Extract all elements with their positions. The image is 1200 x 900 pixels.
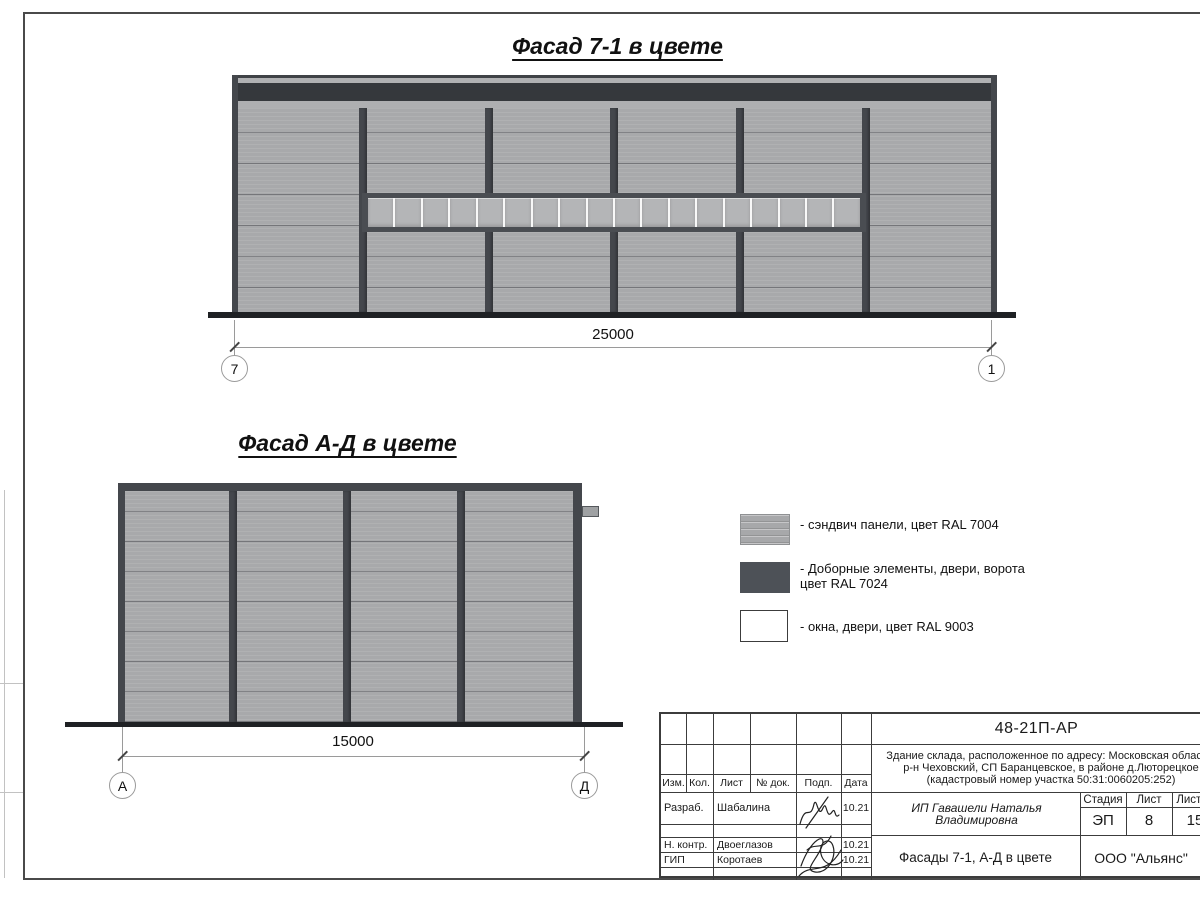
window-pane (807, 198, 832, 227)
window-pane (368, 198, 393, 227)
stage-label: Стадия (1080, 792, 1126, 807)
sheets-value: 15 (1172, 807, 1200, 835)
window-pane (670, 198, 695, 227)
frame-top-border (23, 12, 1200, 14)
legend-swatch-windows-doors (740, 610, 788, 642)
doc-title: Фасады 7-1, А-Д в цвете (871, 835, 1080, 880)
tb-header-list: Лист (713, 774, 750, 792)
sheets-label: Листов (1172, 792, 1200, 807)
project-description: Здание склада, расположенное по адресу: … (873, 744, 1200, 792)
legend-swatch-trim-elements (740, 562, 790, 593)
company-name: ООО "Альянс" (1080, 835, 1200, 880)
stage-value: ЭП (1080, 807, 1126, 835)
facade-ad-title: Фасад А-Д в цвете (180, 430, 515, 457)
dimension-line (122, 756, 584, 757)
legend-label-line: - окна, двери, цвет RAL 9003 (800, 619, 1160, 634)
axis-marker-d: Д (571, 772, 598, 799)
margin-strip-divider (0, 792, 23, 793)
column (343, 491, 351, 722)
window-pane (560, 198, 585, 227)
ground-baseline (65, 722, 623, 727)
project-line: (кадастровый номер участка 50:31:0060205… (927, 774, 1176, 786)
dimension-line (234, 347, 992, 348)
extension-line (584, 727, 585, 773)
tb-role: ГИП (664, 852, 713, 867)
legend-swatch-sandwich-panels (740, 514, 790, 545)
ribbon-window-strip (362, 193, 866, 232)
facade-ad-elevation (118, 483, 582, 722)
window-pane (505, 198, 530, 227)
flashing-strip (232, 101, 997, 108)
corner-trim-right (573, 483, 582, 722)
wall-protrusion (582, 506, 599, 517)
window-pane (752, 198, 777, 227)
legend-label-line: - сэндвич панели, цвет RAL 7004 (800, 517, 1160, 532)
legend-label: - сэндвич панели, цвет RAL 7004 (800, 517, 1160, 532)
window-pane (450, 198, 475, 227)
window-strip-panes (368, 198, 860, 227)
corner-trim-left (118, 483, 125, 722)
drawing-sheet: Фасад 7-1 в цвете 25000 7 1 Фасад А-Д в … (0, 0, 1200, 900)
window-pane (533, 198, 558, 227)
ground-baseline (208, 312, 1016, 318)
signature-gip (793, 822, 847, 880)
window-pane (478, 198, 503, 227)
legend-label: - Доборные элементы, двери, ворота цвет … (800, 561, 1160, 591)
extension-line (122, 727, 123, 773)
window-pane (834, 198, 859, 227)
corner-trim-left (232, 75, 238, 312)
legend-label-line: цвет RAL 7024 (800, 576, 1160, 591)
tb-role: Н. контр. (664, 837, 713, 852)
axis-marker-a: А (109, 772, 136, 799)
title-block: 48-21П-АР Здание склада, расположенное п… (659, 712, 1200, 878)
window-pane (423, 198, 448, 227)
tb-header-kol: Кол. (686, 774, 713, 792)
tb-header-podp: Подп. (796, 774, 841, 792)
margin-strip-divider (0, 683, 23, 684)
tb-role: Разраб. (664, 792, 713, 824)
legend-label-line: - Доборные элементы, двери, ворота (800, 561, 1160, 576)
window-pane (615, 198, 640, 227)
doc-number: 48-21П-АР (871, 714, 1200, 744)
window-pane (725, 198, 750, 227)
column (457, 491, 465, 722)
client-name: ИП Гавашели Наталья Владимировна (873, 792, 1080, 835)
facade-7-1-title: Фасад 7-1 в цвете (400, 33, 835, 60)
sheet-value: 8 (1126, 807, 1172, 835)
sheet-label: Лист (1126, 792, 1172, 807)
parapet-band (232, 83, 997, 101)
tb-name: Шабалина (717, 792, 796, 824)
window-pane (697, 198, 722, 227)
tb-name: Двоеглазов (717, 837, 796, 852)
facade-7-1-elevation (232, 75, 997, 318)
tb-header-data: Дата (841, 774, 871, 792)
dimension-value: 25000 (463, 326, 763, 343)
column (229, 491, 237, 722)
margin-strip-line (4, 490, 5, 878)
parapet-band (118, 483, 582, 491)
tb-header-izm: Изм. (661, 774, 686, 792)
window-pane (395, 198, 420, 227)
tb-header-ndok: № док. (750, 774, 796, 792)
window-pane (780, 198, 805, 227)
project-line: р-н Чеховский, СП Баранцевское, в районе… (903, 762, 1199, 774)
window-pane (588, 198, 613, 227)
corner-trim-right (991, 75, 997, 312)
tb-date: 10.21 (841, 792, 871, 824)
tb-name: Коротаев (717, 852, 796, 867)
legend-label: - окна, двери, цвет RAL 9003 (800, 619, 1160, 634)
dimension-value: 15000 (203, 733, 503, 750)
axis-marker-1: 1 (978, 355, 1005, 382)
project-line: Здание склада, расположенное по адресу: … (886, 750, 1200, 762)
axis-marker-7: 7 (221, 355, 248, 382)
tb-line (713, 714, 714, 880)
window-pane (642, 198, 667, 227)
frame-left-border (23, 12, 25, 880)
